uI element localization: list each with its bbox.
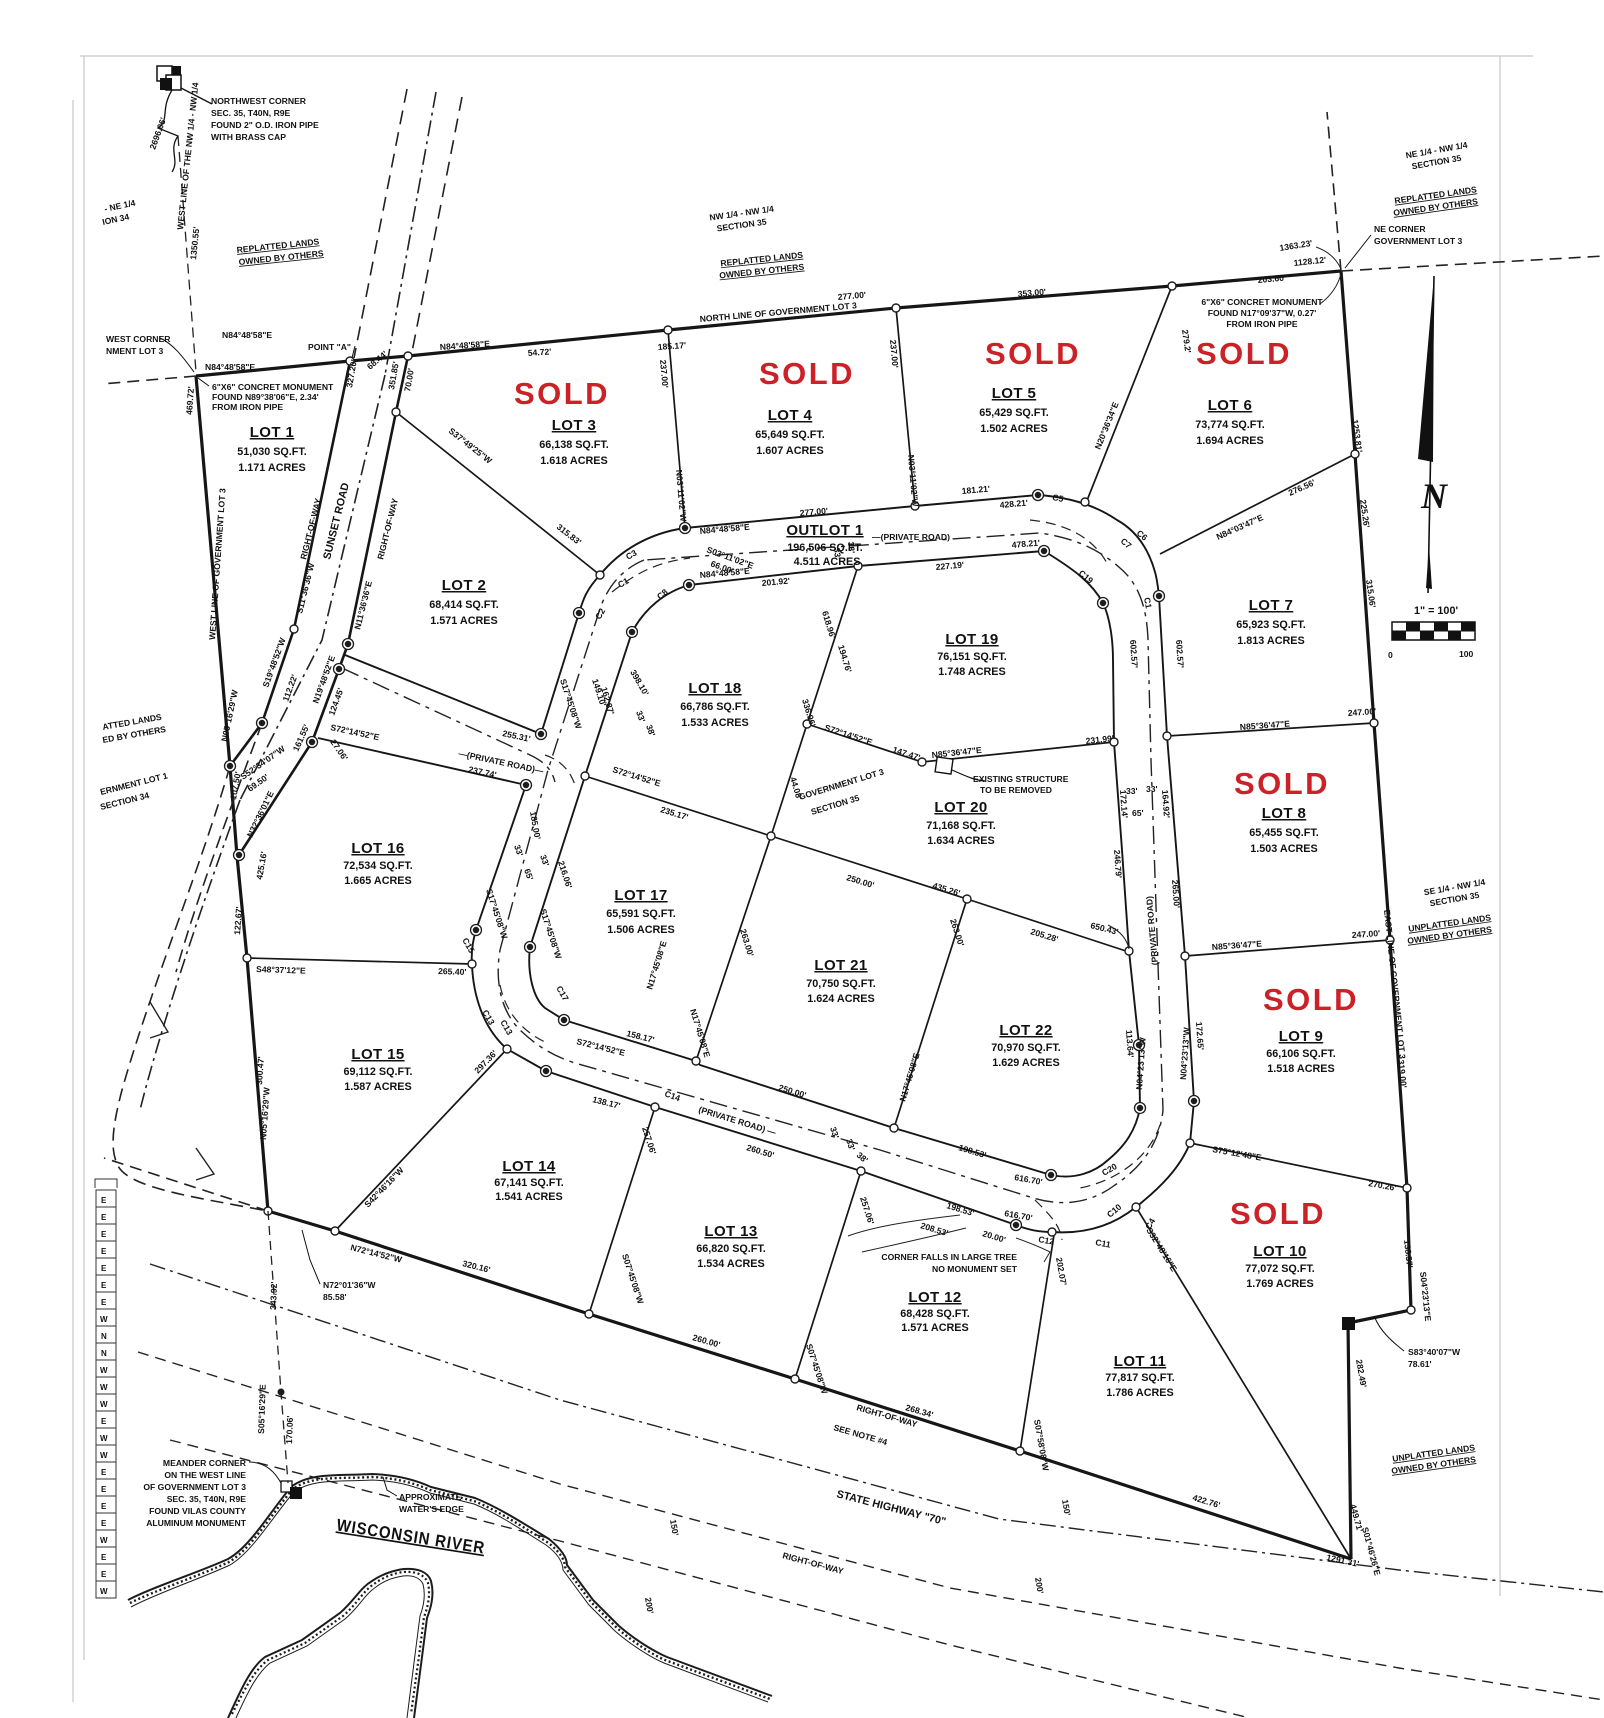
svg-text:65,923 SQ.FT.: 65,923 SQ.FT. [1236, 619, 1306, 631]
svg-text:LOT 15: LOT 15 [351, 1046, 404, 1063]
svg-text:E: E [101, 1502, 107, 1511]
svg-text:172.65': 172.65' [1194, 1021, 1206, 1050]
svg-text:OF GOVERNMENT LOT 3: OF GOVERNMENT LOT 3 [143, 1482, 246, 1492]
svg-text:78.61': 78.61' [1408, 1359, 1432, 1369]
svg-text:65,649 SQ.FT.: 65,649 SQ.FT. [755, 429, 825, 441]
svg-text:TO BE REMOVED: TO BE REMOVED [980, 785, 1052, 795]
svg-text:LOT 16: LOT 16 [351, 840, 404, 857]
svg-text:66,138 SQ.FT.: 66,138 SQ.FT. [539, 439, 609, 451]
svg-text:W: W [100, 1451, 108, 1460]
svg-text:NE CORNER: NE CORNER [1374, 224, 1426, 234]
svg-text:1.786 ACRES: 1.786 ACRES [1106, 1387, 1173, 1399]
svg-text:66,786 SQ.FT.: 66,786 SQ.FT. [680, 701, 750, 713]
svg-text:E: E [101, 1247, 107, 1256]
svg-text:1.769 ACRES: 1.769 ACRES [1246, 1278, 1313, 1290]
svg-text:1.694 ACRES: 1.694 ACRES [1196, 435, 1263, 447]
svg-text:76,151 SQ.FT.: 76,151 SQ.FT. [937, 651, 1007, 663]
svg-text:33': 33' [1146, 784, 1158, 794]
svg-text:SEC. 35, T40N, R9E: SEC. 35, T40N, R9E [167, 1494, 247, 1504]
svg-text:1.534 ACRES: 1.534 ACRES [697, 1258, 764, 1270]
svg-text:W: W [100, 1587, 108, 1596]
svg-text:1.541 ACRES: 1.541 ACRES [495, 1191, 562, 1203]
svg-text:E: E [101, 1519, 107, 1528]
svg-text:1.634 ACRES: 1.634 ACRES [927, 835, 994, 847]
svg-text:LOT 13: LOT 13 [704, 1223, 757, 1240]
svg-text:N: N [1420, 476, 1449, 516]
svg-text:1.571 ACRES: 1.571 ACRES [430, 615, 497, 627]
svg-text:164.92': 164.92' [1160, 789, 1172, 818]
svg-text:POINT "A": POINT "A" [308, 342, 351, 352]
svg-text:343.92': 343.92' [268, 1281, 279, 1310]
svg-text:602.57': 602.57' [1128, 639, 1140, 668]
svg-text:70,970 SQ.FT.: 70,970 SQ.FT. [991, 1042, 1061, 1054]
svg-text:70,750 SQ.FT.: 70,750 SQ.FT. [806, 978, 876, 990]
svg-text:E: E [101, 1468, 107, 1477]
svg-text:1.629 ACRES: 1.629 ACRES [992, 1057, 1059, 1069]
svg-text:LOT 21: LOT 21 [814, 957, 867, 974]
svg-text:122.67': 122.67' [232, 906, 244, 935]
svg-text:SOLD: SOLD [759, 356, 855, 391]
svg-text:LOT 4: LOT 4 [768, 407, 813, 424]
svg-text:65,591 SQ.FT.: 65,591 SQ.FT. [606, 908, 676, 920]
svg-text:SOLD: SOLD [1196, 336, 1292, 371]
svg-text:GOVERNMENT LOT 3: GOVERNMENT LOT 3 [1374, 236, 1463, 246]
svg-text:CORNER FALLS IN LARGE TREE: CORNER FALLS IN LARGE TREE [881, 1252, 1017, 1262]
svg-text:N: N [101, 1349, 107, 1358]
svg-text:WITH BRASS CAP: WITH BRASS CAP [211, 132, 286, 142]
svg-text:OUTLOT 1: OUTLOT 1 [786, 522, 863, 539]
svg-text:E: E [101, 1213, 107, 1222]
svg-text:247.00': 247.00' [1351, 928, 1380, 940]
svg-text:1.506 ACRES: 1.506 ACRES [607, 924, 674, 936]
svg-text:185.17': 185.17' [657, 340, 686, 352]
svg-text:469.72': 469.72' [184, 386, 196, 415]
svg-text:LOT 5: LOT 5 [992, 385, 1037, 402]
svg-text:E: E [101, 1230, 107, 1239]
svg-text:E: E [101, 1553, 107, 1562]
svg-text:54.72': 54.72' [527, 346, 551, 358]
svg-text:W: W [100, 1315, 108, 1324]
svg-text:LOT 14: LOT 14 [502, 1158, 556, 1175]
svg-text:170.06': 170.06' [284, 1415, 295, 1444]
svg-text:C1: C1 [1142, 597, 1154, 610]
svg-text:66,106 SQ.FT.: 66,106 SQ.FT. [1266, 1048, 1336, 1060]
svg-text:E: E [101, 1485, 107, 1494]
svg-text:LOT 20: LOT 20 [934, 799, 987, 816]
svg-text:W: W [100, 1366, 108, 1375]
svg-text:FOUND 2" O.D. IRON PIPE: FOUND 2" O.D. IRON PIPE [211, 120, 319, 130]
svg-text:LOT 7: LOT 7 [1249, 597, 1294, 614]
svg-text:65,455 SQ.FT.: 65,455 SQ.FT. [1249, 827, 1319, 839]
svg-text:1.171 ACRES: 1.171 ACRES [238, 462, 305, 474]
svg-text:WATER'S EDGE: WATER'S EDGE [399, 1504, 464, 1514]
svg-text:FOUND N89°38'06"E, 2.34': FOUND N89°38'06"E, 2.34' [212, 392, 319, 402]
svg-text:FROM IRON PIPE: FROM IRON PIPE [212, 402, 283, 412]
svg-text:ALUMINUM MONUMENT: ALUMINUM MONUMENT [146, 1518, 247, 1528]
svg-text:67,141 SQ.FT.: 67,141 SQ.FT. [494, 1177, 564, 1189]
svg-text:E: E [101, 1196, 107, 1205]
svg-text:FROM IRON PIPE: FROM IRON PIPE [1226, 319, 1297, 329]
svg-text:1.624 ACRES: 1.624 ACRES [807, 993, 874, 1005]
svg-text:66,820 SQ.FT.: 66,820 SQ.FT. [696, 1243, 766, 1255]
svg-text:LOT 8: LOT 8 [1262, 805, 1307, 822]
svg-text:EXISTING STRUCTURE: EXISTING STRUCTURE [973, 774, 1069, 784]
svg-text:E: E [101, 1281, 107, 1290]
svg-text:1.533 ACRES: 1.533 ACRES [681, 717, 748, 729]
svg-text:ON THE WEST LINE: ON THE WEST LINE [164, 1470, 246, 1480]
svg-text:265.00': 265.00' [1170, 879, 1182, 908]
svg-text:LOT 1: LOT 1 [250, 424, 295, 441]
svg-text:33': 33' [832, 547, 843, 559]
svg-text:LOT 12: LOT 12 [908, 1289, 961, 1306]
svg-text:1.502 ACRES: 1.502 ACRES [980, 423, 1047, 435]
svg-text:6"X6" CONCRET MONUMENT: 6"X6" CONCRET MONUMENT [1201, 297, 1323, 307]
svg-text:C5: C5 [1052, 492, 1065, 504]
svg-text:E: E [101, 1264, 107, 1273]
svg-text:APPROXIMATE: APPROXIMATE [399, 1492, 462, 1502]
svg-text:1.571 ACRES: 1.571 ACRES [901, 1322, 968, 1334]
svg-text:NORTHWEST CORNER: NORTHWEST CORNER [211, 96, 307, 106]
svg-text:FOUND N17°09'37"W, 0.27': FOUND N17°09'37"W, 0.27' [1208, 308, 1317, 318]
svg-text:1.518 ACRES: 1.518 ACRES [1267, 1063, 1334, 1075]
svg-text:1.587 ACRES: 1.587 ACRES [344, 1081, 411, 1093]
svg-text:S83°40'07"W: S83°40'07"W [1408, 1347, 1461, 1357]
svg-text:N84°48'58"E: N84°48'58"E [222, 330, 272, 340]
svg-text:S05°16'29"E: S05°16'29"E [256, 1384, 268, 1434]
svg-text:300.47': 300.47' [254, 1056, 266, 1085]
svg-text:265.40': 265.40' [438, 966, 467, 977]
svg-text:N72°01'36"W: N72°01'36"W [323, 1280, 376, 1290]
svg-text:65': 65' [1132, 808, 1144, 818]
svg-text:69,112 SQ.FT.: 69,112 SQ.FT. [343, 1066, 412, 1078]
svg-text:1.607 ACRES: 1.607 ACRES [756, 445, 823, 457]
svg-text:LOT 10: LOT 10 [1253, 1243, 1306, 1260]
svg-text:602.57': 602.57' [1174, 639, 1186, 668]
svg-text:33': 33' [1126, 786, 1138, 796]
svg-text:68,428 SQ.FT.: 68,428 SQ.FT. [900, 1308, 970, 1320]
svg-text:FOUND VILAS COUNTY: FOUND VILAS COUNTY [149, 1506, 246, 1516]
svg-text:72,534 SQ.FT.: 72,534 SQ.FT. [343, 860, 413, 872]
svg-text:LOT 9: LOT 9 [1279, 1028, 1324, 1045]
svg-text:33': 33' [846, 541, 857, 553]
svg-text:0: 0 [1388, 650, 1393, 660]
svg-text:LOT 6: LOT 6 [1208, 397, 1253, 414]
svg-text:85.58': 85.58' [323, 1292, 347, 1302]
svg-text:NO MONUMENT SET: NO MONUMENT SET [932, 1264, 1018, 1274]
svg-text:SOLD: SOLD [1263, 982, 1359, 1017]
svg-text:LOT 18: LOT 18 [688, 680, 741, 697]
svg-text:E: E [101, 1570, 107, 1579]
svg-text:W: W [100, 1536, 108, 1545]
svg-text:LOT 22: LOT 22 [999, 1022, 1052, 1039]
svg-text:77,817 SQ.FT.: 77,817 SQ.FT. [1105, 1372, 1175, 1384]
svg-text:71,168 SQ.FT.: 71,168 SQ.FT. [926, 820, 996, 832]
svg-text:MEANDER CORNER: MEANDER CORNER [163, 1458, 247, 1468]
svg-text:100: 100 [1459, 649, 1474, 659]
svg-text:1.503 ACRES: 1.503 ACRES [1250, 843, 1317, 855]
svg-text:N: N [101, 1332, 107, 1341]
svg-text:73,774 SQ.FT.: 73,774 SQ.FT. [1195, 419, 1265, 431]
svg-text:1" = 100': 1" = 100' [1414, 605, 1458, 617]
svg-text:LOT 11: LOT 11 [1114, 1353, 1166, 1370]
svg-text:LOT 19: LOT 19 [945, 631, 998, 648]
svg-text:W: W [100, 1383, 108, 1392]
svg-text:1.618 ACRES: 1.618 ACRES [540, 455, 607, 467]
svg-text:SOLD: SOLD [514, 376, 610, 411]
svg-text:1.813 ACRES: 1.813 ACRES [1237, 635, 1304, 647]
svg-text:1.665 ACRES: 1.665 ACRES [344, 875, 411, 887]
svg-text:E: E [101, 1417, 107, 1426]
svg-text:6"X6" CONCRET MONUMENT: 6"X6" CONCRET MONUMENT [212, 382, 334, 392]
svg-text:77,072 SQ.FT.: 77,072 SQ.FT. [1245, 1263, 1315, 1275]
svg-text:51,030 SQ.FT.: 51,030 SQ.FT. [237, 446, 307, 458]
svg-text:LOT 17: LOT 17 [614, 887, 667, 904]
svg-text:65,429 SQ.FT.: 65,429 SQ.FT. [979, 407, 1049, 419]
svg-text:SOLD: SOLD [1234, 766, 1330, 801]
svg-text:LOT 3: LOT 3 [552, 417, 597, 434]
svg-text:E: E [101, 1298, 107, 1307]
svg-text:W: W [100, 1400, 108, 1409]
svg-text:68,414 SQ.FT.: 68,414 SQ.FT. [429, 599, 499, 611]
svg-text:1.748 ACRES: 1.748 ACRES [938, 666, 1005, 678]
svg-text:NMENT LOT 3: NMENT LOT 3 [106, 346, 164, 356]
svg-text:247.00': 247.00' [1347, 706, 1376, 718]
svg-text:W: W [100, 1434, 108, 1443]
svg-text:—(PRIVATE ROAD): —(PRIVATE ROAD) [872, 532, 950, 542]
svg-text:SEC. 35, T40N, R9E: SEC. 35, T40N, R9E [211, 108, 291, 118]
svg-text:113.64': 113.64' [1124, 1029, 1136, 1057]
svg-text:SOLD: SOLD [1230, 1196, 1326, 1231]
svg-text:246.79': 246.79' [1112, 849, 1124, 878]
svg-text:4.511 ACRES: 4.511 ACRES [794, 556, 861, 568]
svg-text:S48°37'12"E: S48°37'12"E [256, 964, 306, 976]
svg-text:N84°48'58"E: N84°48'58"E [205, 362, 255, 372]
svg-text:SOLD: SOLD [985, 336, 1081, 371]
svg-text:LOT 2: LOT 2 [442, 577, 487, 594]
